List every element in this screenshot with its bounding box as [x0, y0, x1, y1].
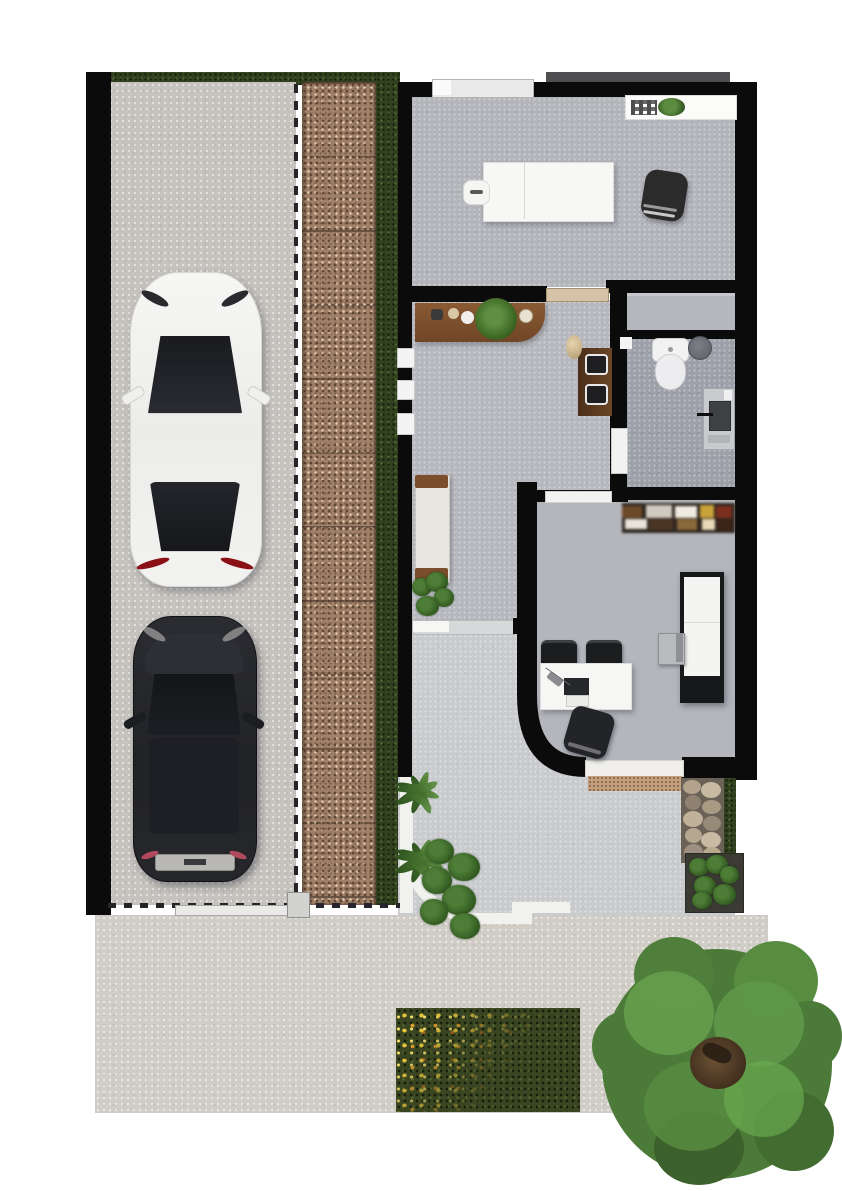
console-dark-item: [431, 309, 443, 320]
bathroom-sink: [688, 336, 712, 360]
dining-table: [540, 663, 632, 710]
stool-side: [676, 634, 683, 662]
black-suv: [133, 616, 257, 882]
bench-wood-top: [415, 475, 448, 488]
black-suv-rear-bumper: [155, 854, 235, 871]
console-bowl: [519, 309, 533, 323]
massage-table: [483, 162, 614, 222]
shelf-item-1: [585, 354, 608, 375]
headrest-slot: [470, 190, 483, 194]
shelf-vase: [566, 335, 582, 359]
laptop: [564, 678, 589, 695]
glass-sliding-door: [412, 620, 515, 635]
counter-plant-2: [691, 97, 722, 117]
wall-entry-right: [682, 757, 757, 780]
toilet-button: [668, 347, 673, 352]
hedge-strip: [724, 778, 736, 863]
console-plant: [475, 298, 517, 340]
black-suv-roof-cabin: [149, 738, 239, 834]
door-bathroom: [611, 428, 628, 474]
console-vase-beige: [448, 308, 459, 319]
gate-post: [287, 892, 310, 918]
wall-stub-glassdoor: [513, 618, 537, 634]
glass-door-frame: [413, 621, 449, 632]
planter-box: [685, 853, 744, 913]
curb-path-bottom: [512, 902, 570, 913]
fallen-leaves: [396, 1008, 580, 1112]
window-left-1: [397, 348, 415, 368]
dashed-fence: [294, 84, 298, 903]
door-treatment: [546, 288, 609, 302]
island-countertop: [684, 577, 720, 676]
office-chair-treatment: [639, 168, 689, 223]
window-top: [432, 79, 534, 98]
wall-treatment-bottom-left: [412, 286, 547, 302]
large-tree: [594, 941, 840, 1187]
entry-doormat: [588, 776, 682, 791]
counter-with-plants: [625, 95, 737, 120]
bench-daybed: [415, 475, 450, 583]
counter-plant-1: [658, 98, 685, 116]
monstera-plants: [420, 833, 500, 941]
shelf-item-2: [585, 384, 608, 405]
bath-switch: [620, 337, 632, 349]
toilet-bowl: [655, 354, 686, 390]
floor-plan-canvas: [0, 0, 842, 1191]
washer-top-tab: [724, 390, 732, 400]
wood-console: [415, 303, 545, 342]
exterior-wall-right: [735, 82, 757, 780]
laptop-paper: [566, 695, 589, 707]
white-sedan-windshield: [147, 336, 243, 418]
window-left-3: [397, 413, 415, 435]
lawn-patch: [396, 1008, 580, 1112]
door-living-dining: [545, 491, 612, 503]
white-sedan-rear-window: [148, 482, 242, 554]
stone-feature: [681, 778, 724, 863]
washer-drum: [709, 401, 731, 431]
wall-bathroom-bottom: [620, 487, 735, 500]
closet-band: [627, 292, 735, 334]
massage-table-seam: [524, 163, 525, 219]
wall-shelf: [578, 348, 612, 416]
gravel-paver-strip: [302, 82, 376, 905]
counter-small-items: [631, 100, 657, 115]
console-vase-white: [461, 311, 474, 324]
gate-bar: [175, 905, 295, 916]
washer-handle: [697, 413, 713, 416]
window-left-2: [397, 380, 415, 400]
massage-headrest: [463, 180, 490, 205]
window-top-pane: [433, 80, 451, 95]
perimeter-wall-left: [86, 72, 111, 915]
low-stool: [658, 633, 685, 665]
washing-machine: [703, 388, 735, 450]
pantry-shelf: [622, 503, 735, 533]
entry-threshold: [585, 760, 684, 777]
island-seam: [684, 622, 720, 623]
white-sedan: [130, 272, 262, 587]
wall-treatment-bottom-right: [606, 280, 735, 293]
washer-base: [708, 435, 730, 443]
hallway-floor-plant: [408, 570, 460, 620]
kitchen-island: [680, 572, 724, 703]
black-suv-windshield: [147, 674, 241, 738]
toilet: [652, 338, 689, 388]
